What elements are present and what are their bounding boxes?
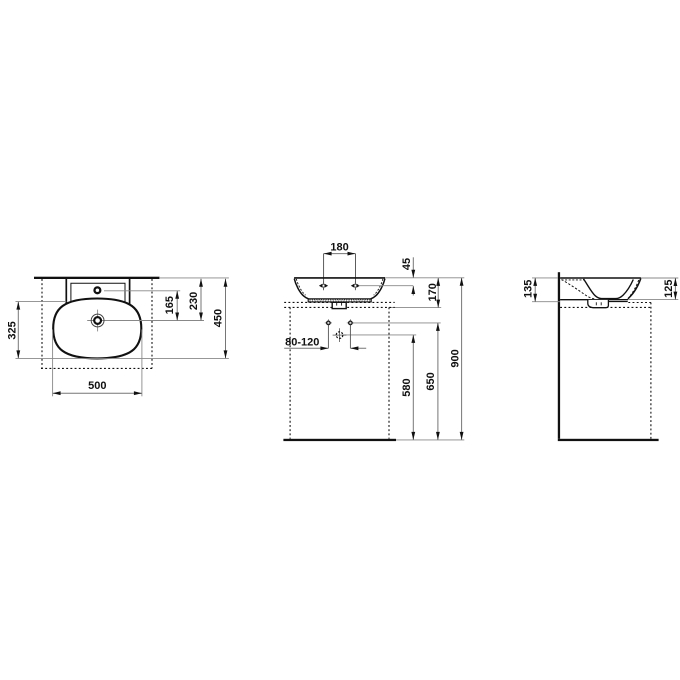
svg-text:230: 230 — [188, 292, 200, 310]
svg-text:125: 125 — [663, 280, 675, 298]
svg-text:650: 650 — [425, 372, 437, 390]
svg-text:580: 580 — [401, 378, 413, 396]
svg-text:180: 180 — [330, 242, 348, 254]
svg-text:450: 450 — [213, 309, 225, 327]
svg-text:135: 135 — [523, 280, 535, 298]
svg-text:900: 900 — [450, 349, 462, 367]
svg-text:165: 165 — [164, 296, 176, 314]
svg-text:500: 500 — [88, 380, 106, 392]
svg-text:325: 325 — [6, 321, 18, 339]
svg-text:45: 45 — [401, 258, 413, 270]
svg-text:170: 170 — [427, 283, 439, 301]
svg-text:80-120: 80-120 — [285, 337, 319, 349]
